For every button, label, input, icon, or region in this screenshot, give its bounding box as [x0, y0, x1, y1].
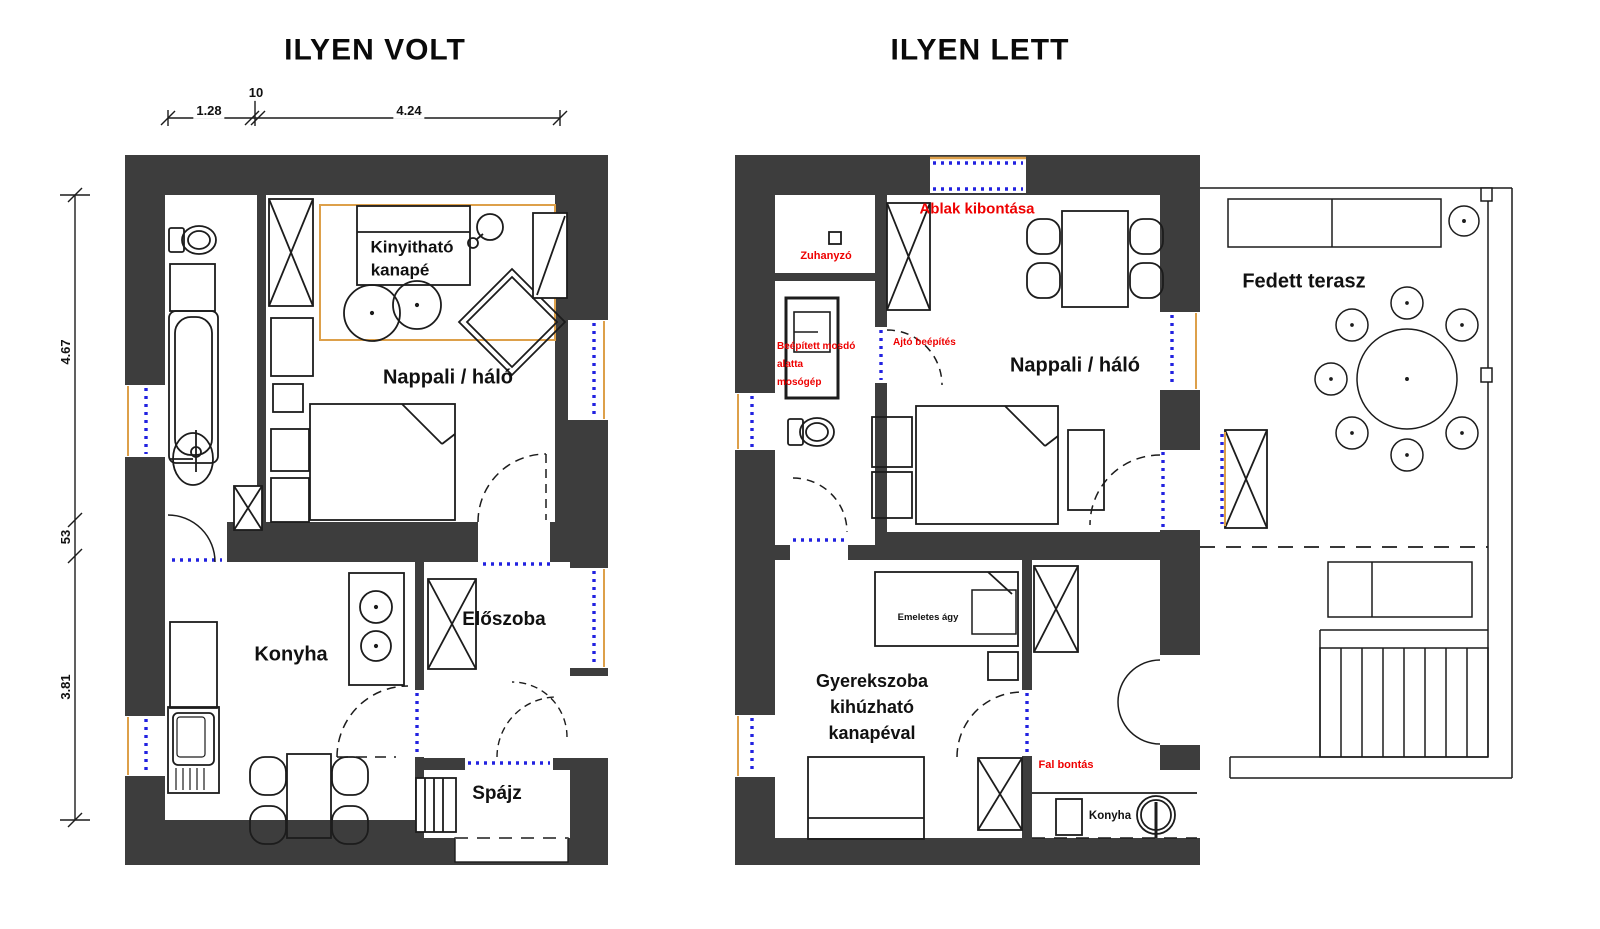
dim-top-1: 1.28 [193, 103, 224, 119]
floorplan-comparison: ILYEN VOLT ILYEN LETT 1.28 10 4.24 4.67 … [0, 0, 1600, 929]
kids-room-label-line1: Gyerekszoba [816, 670, 928, 693]
dim-left-1: 4.67 [58, 336, 74, 367]
right-living-label: Nappali / háló [1010, 354, 1140, 379]
wall-demolition-annotation: Fal bontás [1038, 759, 1093, 773]
builtin-sink-annotation-line1: Beépített mosdó [777, 341, 855, 354]
door-install-annotation: Ajtó beépítés [893, 337, 956, 350]
dim-top-3: 4.24 [393, 103, 424, 119]
builtin-sink-annotation-line3: mosógép [777, 377, 821, 390]
dim-left-3: 3.81 [58, 671, 74, 702]
bunk-bed-label: Emeletes ágy [896, 612, 961, 624]
right-kitchen-label: Konyha [1089, 809, 1131, 823]
kids-room-label-line3: kanapéval [828, 722, 915, 745]
left-plan-title: ILYEN VOLT [284, 31, 466, 69]
left-hall-label: Előszoba [462, 608, 545, 632]
left-living-label: Nappali / háló [383, 366, 513, 391]
window-removal-annotation: Ablak kibontása [919, 201, 1034, 220]
dim-top-2: 10 [247, 85, 265, 101]
dim-left-2: 53 [58, 528, 74, 546]
builtin-sink-annotation-line2: alatta [777, 359, 803, 372]
terrace-label: Fedett terasz [1242, 270, 1365, 295]
shower-annotation: Zuhanyzó [800, 250, 851, 264]
left-pantry-label: Spájz [472, 782, 522, 806]
kids-room-label-line2: kihúzható [830, 696, 914, 719]
right-plan-title: ILYEN LETT [891, 31, 1070, 69]
sofa-label-line2: kanapé [371, 259, 430, 280]
sofa-label-line1: Kinyitható [370, 236, 453, 257]
left-plan [60, 100, 608, 865]
left-kitchen-label: Konyha [254, 643, 327, 668]
floorplan-drawing [0, 0, 1600, 929]
